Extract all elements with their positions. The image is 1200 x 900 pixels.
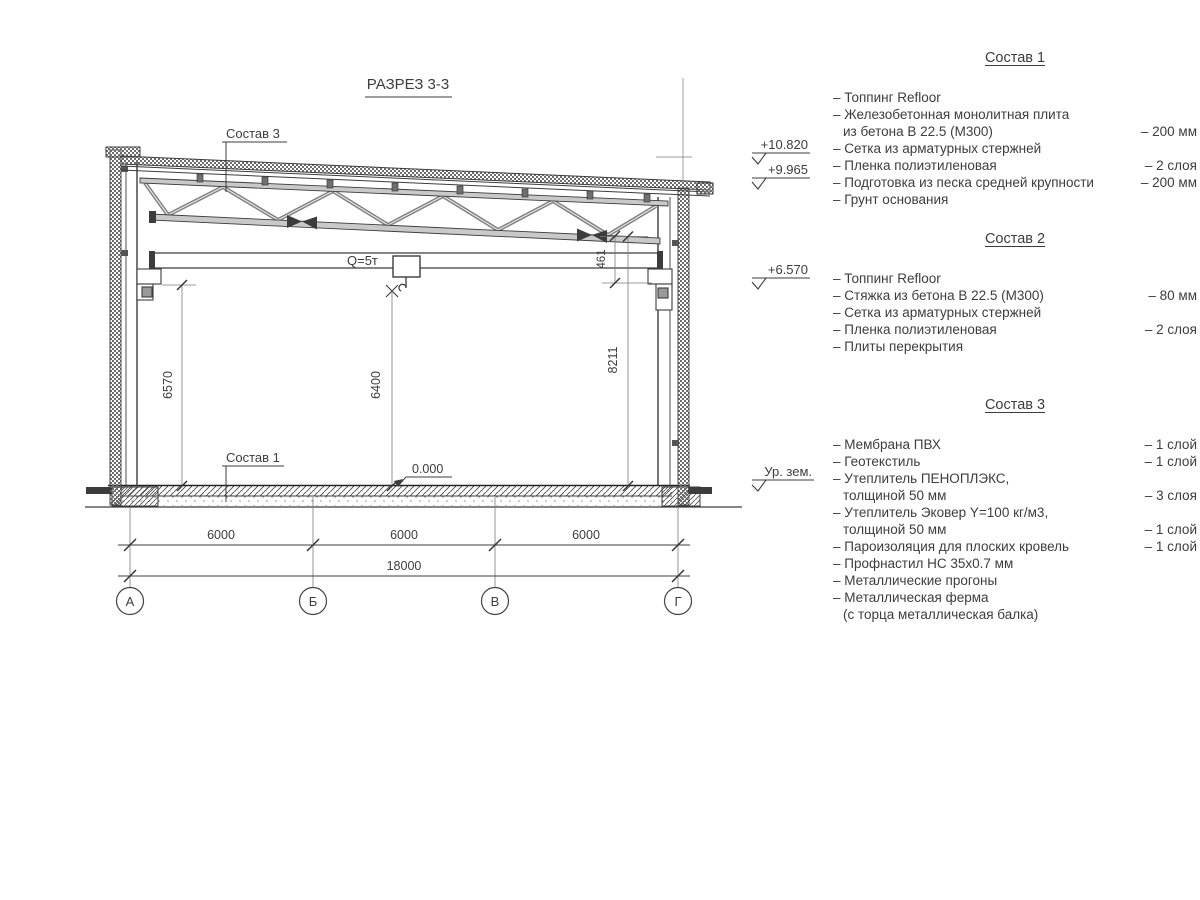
crane: Q=5т bbox=[149, 251, 663, 297]
legend-item-value: – 2 слоя bbox=[1145, 321, 1197, 338]
legend-item: – Металлические прогоны bbox=[833, 572, 1197, 589]
legend-item-text: – Грунт основания bbox=[833, 191, 1197, 208]
legend-item-text: – Геотекстиль bbox=[833, 453, 1145, 470]
legend-item-text: толщиной 50 мм bbox=[833, 521, 1145, 538]
legend-item: – Утеплитель ПЕНОПЛЭКС, bbox=[833, 470, 1197, 487]
legend-item-value: – 200 мм bbox=[1141, 123, 1197, 140]
legend-composition-3: Состав 3 – Мембрана ПВХ– 1 слой – Геотек… bbox=[833, 397, 1197, 623]
legend-item-text: – Сетка из арматурных стержней bbox=[833, 304, 1197, 321]
legend-item-text: (с торца металлическая балка) bbox=[833, 606, 1197, 623]
elevation-mark-crane-rail: +6.570 bbox=[752, 262, 810, 289]
legend-item-value: – 3 слоя bbox=[1145, 487, 1197, 504]
legend-item-text: – Пароизоляция для плоских кровель bbox=[833, 538, 1145, 555]
legend-item: – Утеплитель Эковер Y=100 кг/м3, bbox=[833, 504, 1197, 521]
elevation-arrow-icon bbox=[752, 480, 766, 491]
legend-item: – Сетка из арматурных стержней bbox=[833, 304, 1197, 321]
legend-item-text: – Мембрана ПВХ bbox=[833, 436, 1145, 453]
legend-item: – Железобетонная монолитная плита bbox=[833, 106, 1197, 123]
roof-edge-cap bbox=[697, 183, 713, 194]
legend-item: – Топпинг Refloor bbox=[833, 89, 1197, 106]
legend-item: толщиной 50 мм– 3 слоя bbox=[833, 487, 1197, 504]
legend-item-text: – Стяжка из бетона В 22.5 (М300) bbox=[833, 287, 1148, 304]
axis-label-g: Г bbox=[674, 594, 681, 609]
legend-item: – Грунт основания bbox=[833, 191, 1197, 208]
legend-item: из бетона В 22.5 (М300)– 200 мм bbox=[833, 123, 1197, 140]
legend-composition-2: Состав 2 – Топпинг Refloor – Стяжка из б… bbox=[833, 231, 1197, 355]
crane-trolley bbox=[393, 256, 420, 277]
legend-heading: Состав 3 bbox=[833, 397, 1197, 413]
legend-item-text: – Топпинг Refloor bbox=[833, 89, 1197, 106]
legend-item-value: – 1 слой bbox=[1145, 538, 1197, 555]
elevation-extension-lines bbox=[656, 78, 692, 183]
legend-heading: Состав 2 bbox=[833, 231, 1197, 247]
legend-item-value: – 200 мм bbox=[1141, 174, 1197, 191]
left-apron bbox=[86, 487, 112, 494]
legend-item: – Подготовка из песка средней крупности–… bbox=[833, 174, 1197, 191]
elevation-mark-ground: Ур. зем. bbox=[752, 464, 814, 491]
dim-gap: 461 bbox=[596, 249, 608, 268]
legend-item: – Сетка из арматурных стержней bbox=[833, 140, 1197, 157]
legend-item: – Стяжка из бетона В 22.5 (М300)– 80 мм bbox=[833, 287, 1197, 304]
legend-item-text: – Топпинг Refloor bbox=[833, 270, 1197, 287]
legend-item: – Плиты перекрытия bbox=[833, 338, 1197, 355]
drawing-sheet: РАЗРЕЗ 3-3 bbox=[0, 0, 1200, 900]
dim-hook-height: 6400 bbox=[369, 371, 383, 399]
floor-slab bbox=[85, 486, 742, 508]
left-wall bbox=[106, 147, 140, 505]
legend-item-text: толщиной 50 мм bbox=[833, 487, 1145, 504]
drawing-title: РАЗРЕЗ 3-3 bbox=[367, 76, 450, 93]
elevation-parapet-label: +10.820 bbox=[761, 137, 808, 152]
legend-item-text: – Металлическая ферма bbox=[833, 589, 1197, 606]
span-dim-2: 6000 bbox=[390, 528, 418, 542]
dim-left-height: 6570 bbox=[161, 371, 175, 399]
elevation-mark-parapet: +10.820 bbox=[752, 137, 810, 164]
total-span-dim: 18000 bbox=[387, 559, 422, 573]
crane-capacity-label: Q=5т bbox=[347, 253, 378, 268]
legend-item-text: – Железобетонная монолитная плита bbox=[833, 106, 1197, 123]
legend-item-value: – 1 слой bbox=[1145, 453, 1197, 470]
axis-label-v: В bbox=[491, 594, 500, 609]
legend-item: – Пароизоляция для плоских кровель– 1 сл… bbox=[833, 538, 1197, 555]
legend-item: – Мембрана ПВХ– 1 слой bbox=[833, 436, 1197, 453]
axis-label-b: Б bbox=[309, 594, 318, 609]
legend-item-text: из бетона В 22.5 (М300) bbox=[833, 123, 1141, 140]
span-dimension-line: 6000 6000 6000 bbox=[118, 528, 690, 551]
level-zero-group: 0.000 bbox=[394, 462, 452, 487]
legend-item-text: – Пленка полиэтиленовая bbox=[833, 157, 1145, 174]
legend-item: – Пленка полиэтиленовая– 2 слоя bbox=[833, 321, 1197, 338]
crane-hook bbox=[399, 277, 406, 291]
right-wall bbox=[658, 188, 689, 505]
legend-item-text: – Утеплитель Эковер Y=100 кг/м3, bbox=[833, 504, 1197, 521]
legend-item: – Топпинг Refloor bbox=[833, 270, 1197, 287]
level-zero-label: 0.000 bbox=[412, 462, 443, 476]
legend-item: – Пленка полиэтиленовая– 2 слоя bbox=[833, 157, 1197, 174]
legend-item: (с торца металлическая балка) bbox=[833, 606, 1197, 623]
legend-item-text: – Пленка полиэтиленовая bbox=[833, 321, 1145, 338]
dim-right-height: 8211 bbox=[606, 347, 620, 374]
total-dimension-line: 18000 bbox=[118, 559, 690, 582]
span-dim-1: 6000 bbox=[207, 528, 235, 542]
callout-roof-label: Состав 3 bbox=[226, 126, 280, 141]
legend-item-text: – Металлические прогоны bbox=[833, 572, 1197, 589]
grid-axis-bubbles: А Б В Г bbox=[117, 588, 692, 615]
right-apron bbox=[688, 487, 712, 494]
elevation-roof-label: +9.965 bbox=[768, 162, 808, 177]
elevation-ground-label: Ур. зем. bbox=[764, 464, 812, 479]
legend-heading: Состав 1 bbox=[833, 50, 1197, 66]
elevation-crane-label: +6.570 bbox=[768, 262, 808, 277]
legend-item: – Геотекстиль– 1 слой bbox=[833, 453, 1197, 470]
legend-item-text: – Сетка из арматурных стержней bbox=[833, 140, 1197, 157]
callout-floor-label: Состав 1 bbox=[226, 450, 280, 465]
legend-item: – Профнастил НС 35х0.7 мм bbox=[833, 555, 1197, 572]
legend-item-value: – 2 слоя bbox=[1145, 157, 1197, 174]
elevation-arrow-icon bbox=[752, 153, 766, 164]
drawing-title-group: РАЗРЕЗ 3-3 bbox=[365, 76, 452, 97]
legend-item-text: – Плиты перекрытия bbox=[833, 338, 1197, 355]
legend-item-text: – Профнастил НС 35х0.7 мм bbox=[833, 555, 1197, 572]
legend-item: толщиной 50 мм– 1 слой bbox=[833, 521, 1197, 538]
legend-composition-1: Состав 1 – Топпинг Refloor – Железобетон… bbox=[833, 50, 1197, 208]
legend-item-value: – 80 мм bbox=[1148, 287, 1197, 304]
legend-item-value: – 1 слой bbox=[1145, 436, 1197, 453]
legend-item-value: – 1 слой bbox=[1145, 521, 1197, 538]
elevation-arrow-icon bbox=[752, 278, 766, 289]
elevation-mark-roof-edge: +9.965 bbox=[752, 162, 810, 189]
legend-item-text: – Утеплитель ПЕНОПЛЭКС, bbox=[833, 470, 1197, 487]
elevation-arrow-icon bbox=[752, 178, 766, 189]
grid-extension-lines bbox=[130, 497, 678, 587]
legend-item: – Металлическая ферма bbox=[833, 589, 1197, 606]
axis-label-a: А bbox=[126, 594, 135, 609]
span-dim-3: 6000 bbox=[572, 528, 600, 542]
legend-item-text: – Подготовка из песка средней крупности bbox=[833, 174, 1141, 191]
